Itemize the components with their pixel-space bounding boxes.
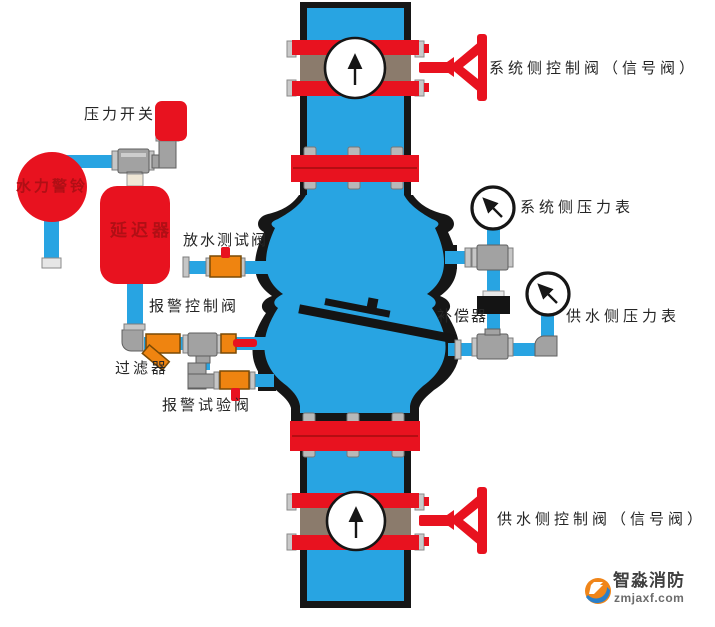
alarm-valve-body xyxy=(253,195,461,422)
brand-name: 智淼消防 xyxy=(613,572,685,591)
label-retard-chamber: 延迟器 xyxy=(110,221,173,241)
label-alarm-test-valve: 报警试验阀 xyxy=(162,397,252,415)
retard-chamber-adapter xyxy=(127,174,143,186)
wet-alarm-valve-diagram: 压力开关 水力警铃 延迟器 放水测试阀 报警控制阀 过滤器 报警试验阀 系统侧控… xyxy=(0,0,715,627)
tee-fitting xyxy=(188,333,217,356)
system-side-control-valve xyxy=(287,34,487,101)
elbow-fitting xyxy=(535,336,557,356)
label-drain-test-valve: 放水测试阀 xyxy=(183,232,268,250)
alarm-control-valve xyxy=(221,334,257,353)
tee-fitting xyxy=(477,245,508,270)
supply-side-pressure-gauge xyxy=(527,273,569,315)
brand-domain: zmjaxf.com xyxy=(614,591,684,605)
label-alarm-control-valve: 报警控制阀 xyxy=(149,298,239,316)
system-side-pressure-gauge xyxy=(472,187,514,229)
tee-fitting xyxy=(118,149,149,173)
pressure-switch xyxy=(155,101,187,141)
label-water-motor-alarm: 水力警铃 xyxy=(16,178,88,196)
label-filter: 过滤器 xyxy=(115,360,169,378)
label-supply-side-pressure-gauge: 供水侧压力表 xyxy=(566,308,680,326)
label-pressure-switch: 压力开关 xyxy=(84,106,156,124)
elbow-fitting xyxy=(122,330,143,351)
tee-fitting xyxy=(477,334,508,359)
grooved-coupling-upper xyxy=(291,147,419,189)
supply-side-control-valve xyxy=(287,487,487,554)
brand-logo-icon xyxy=(585,578,611,604)
label-compensator: 补偿器 xyxy=(437,308,488,326)
label-supply-side-control-valve: 供水侧控制阀（信号阀） xyxy=(497,511,706,529)
valve-handle xyxy=(233,339,257,347)
elbow-fitting xyxy=(159,141,176,168)
label-system-side-control-valve: 系统侧控制阀（信号阀） xyxy=(489,60,698,78)
label-system-side-pressure-gauge: 系统侧压力表 xyxy=(520,199,634,217)
valve-handwheel xyxy=(419,487,487,554)
valve-handwheel xyxy=(419,34,487,101)
bell-drain-cap xyxy=(42,258,61,268)
grooved-coupling-lower xyxy=(290,413,420,457)
